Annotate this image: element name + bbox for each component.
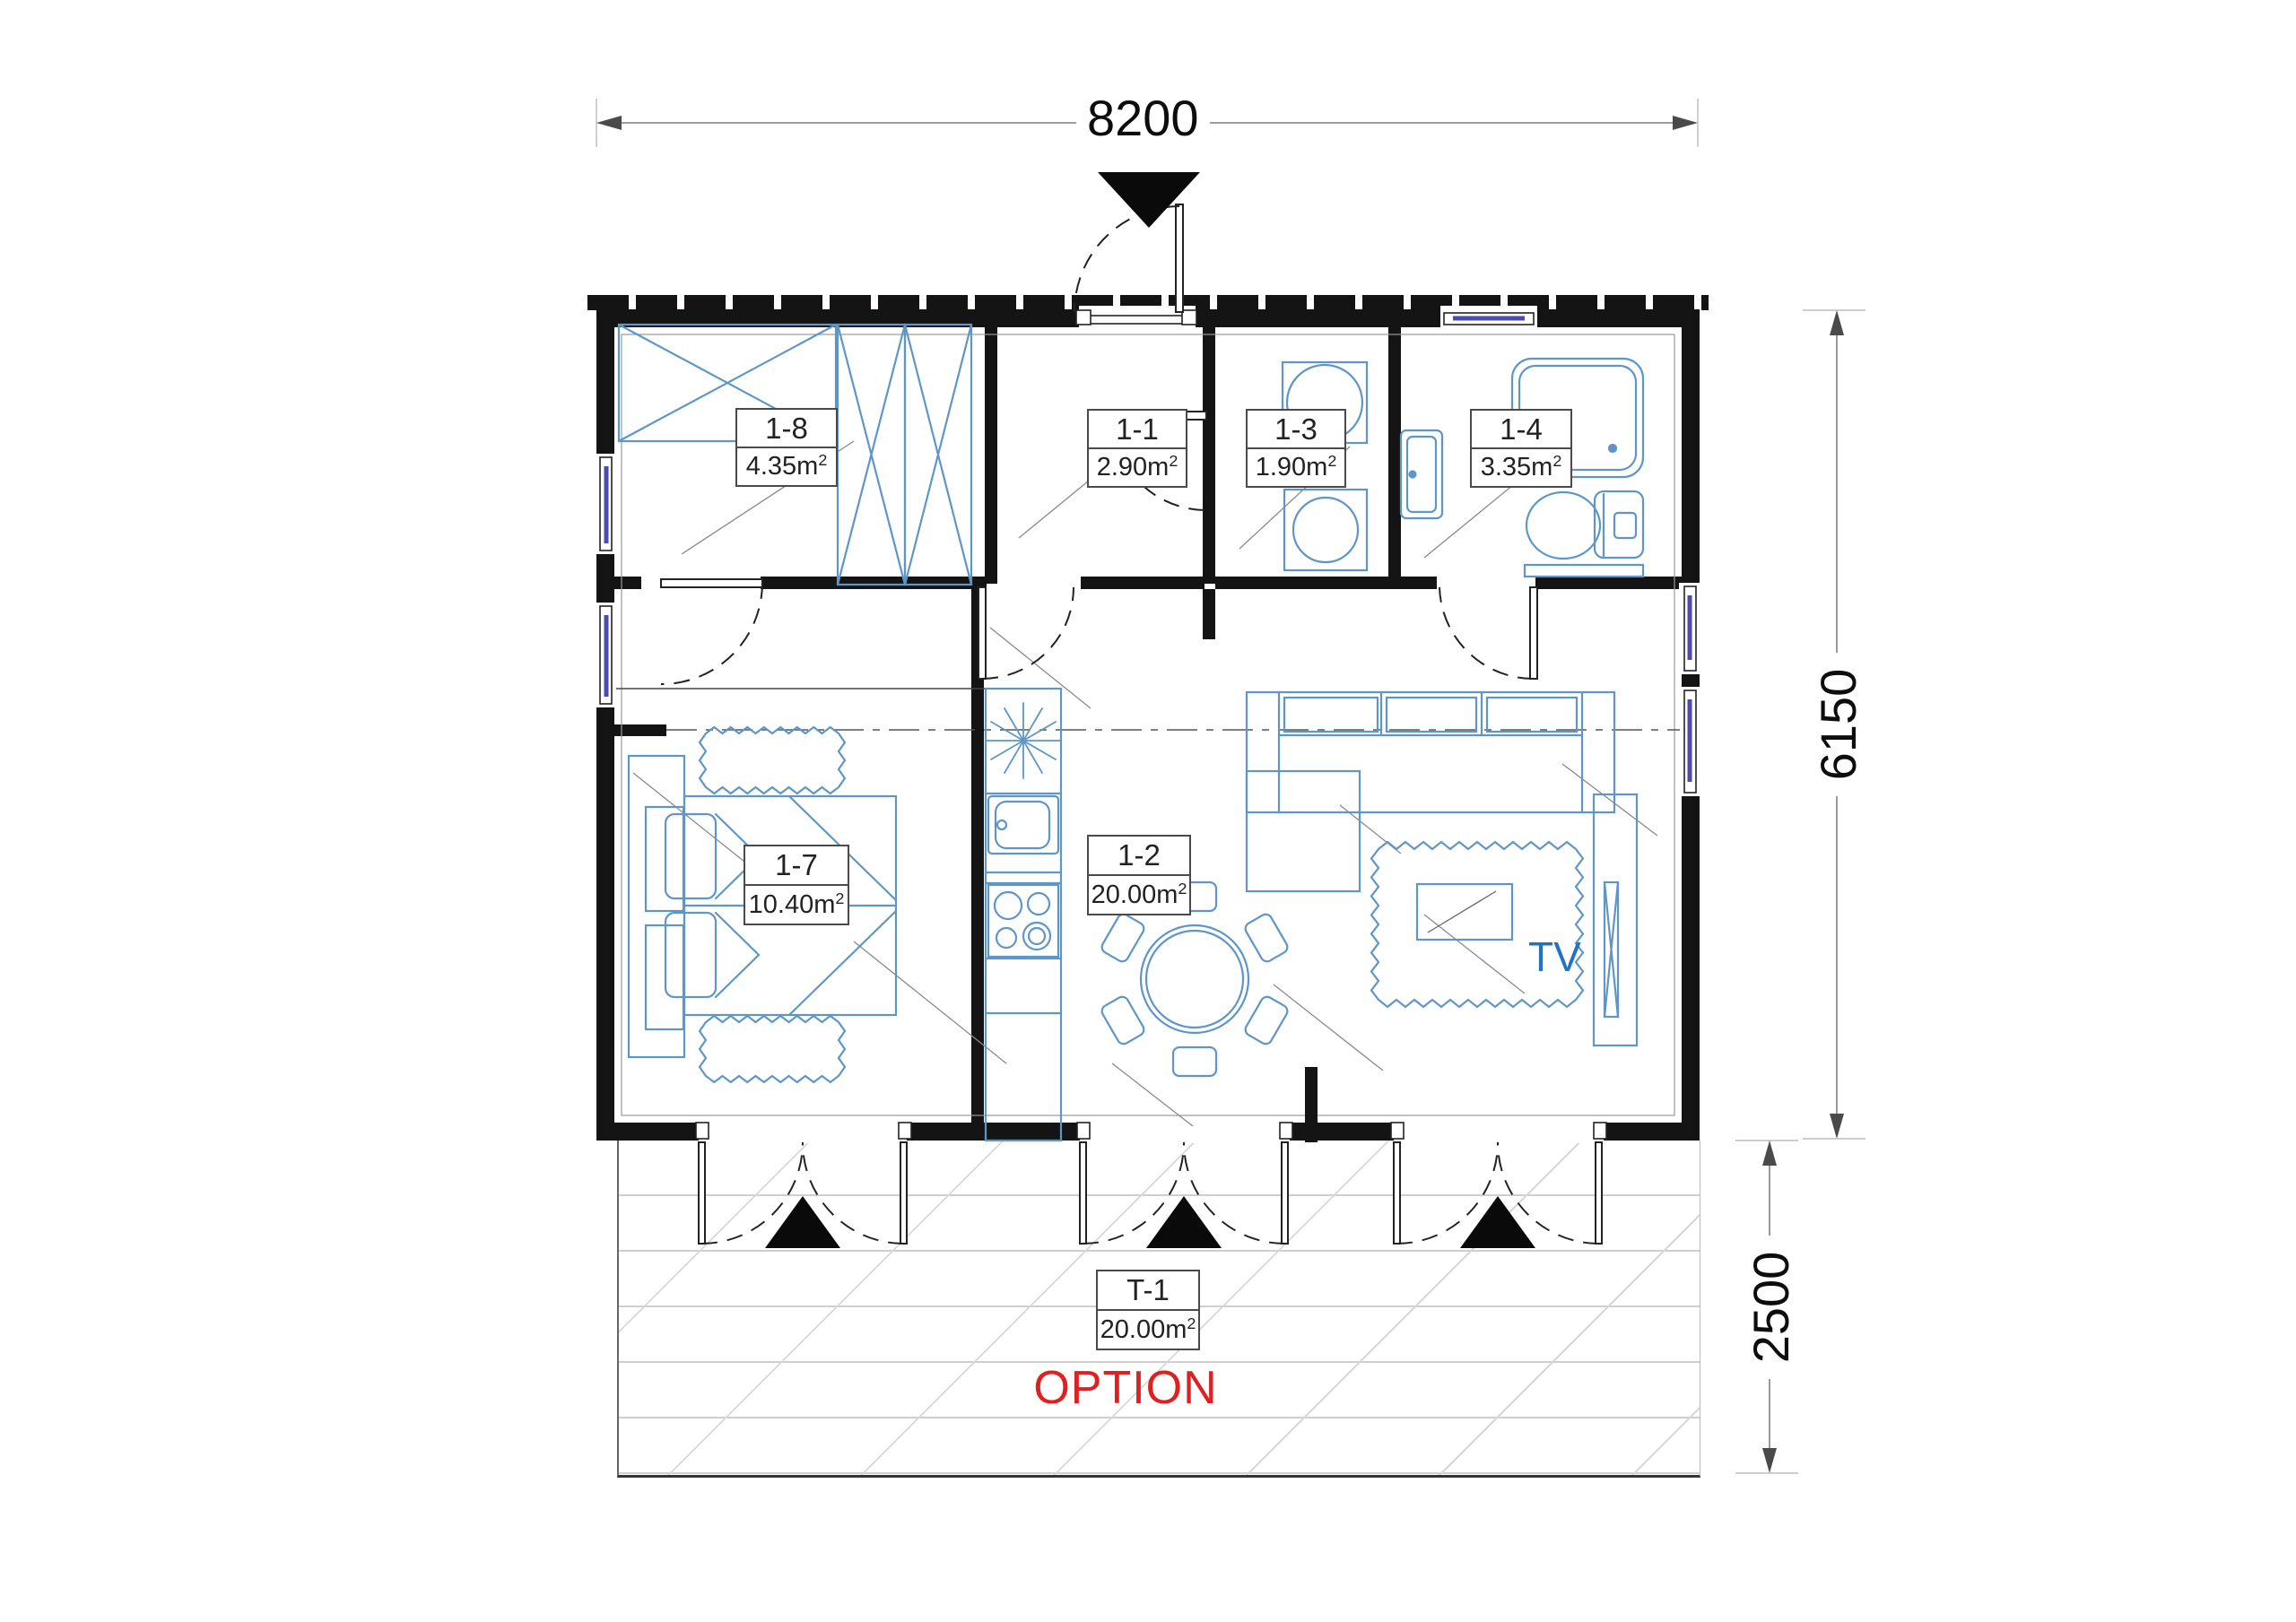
dimension-terrace-depth: 2500: [1744, 1236, 1798, 1379]
hob: [988, 885, 1058, 957]
ceiling-light-icon: [986, 703, 1061, 778]
room-area: 10.40m2: [745, 886, 848, 924]
room-label-closet: 1-8 4.35m2: [735, 408, 838, 487]
window-glazing: [606, 318, 1690, 782]
bedroom-rug-top: [700, 727, 845, 794]
washbasin: [1401, 430, 1442, 518]
room-area: 4.35m2: [737, 448, 836, 485]
living-rug: [1371, 842, 1583, 1007]
room-code: T-1: [1098, 1271, 1198, 1311]
toilet: [1526, 491, 1643, 559]
option-annotation: OPTION: [1022, 1361, 1229, 1415]
room-code: 1-1: [1089, 411, 1186, 449]
kitchen-sink: [988, 796, 1058, 854]
entrance-threshold: [1082, 316, 1193, 324]
room-area: 20.00m2: [1098, 1311, 1198, 1349]
hall-door-leaf: [978, 587, 986, 679]
room-label-bathroom: 1-4 3.35m2: [1470, 409, 1572, 488]
room-label-bedroom: 1-7 10.40m2: [744, 845, 849, 925]
sofa: [1247, 692, 1614, 891]
terrace-arrow-icon-1: [765, 1196, 840, 1248]
coffee-table-diagonal: [1428, 891, 1496, 932]
room-label-terrace: T-1 20.00m2: [1096, 1270, 1200, 1350]
dimension-lines: [596, 99, 1865, 1473]
room-label-hall: 1-1 2.90m2: [1087, 409, 1187, 488]
guide-lines: [633, 441, 1657, 1126]
bath-door-leaf: [1530, 587, 1537, 679]
room-area: 20.00m2: [1089, 876, 1189, 914]
direction-markers: [765, 172, 1535, 1248]
terrace-arrow-icon-2: [1146, 1196, 1222, 1248]
terrace-arrow-icon-3: [1460, 1196, 1535, 1248]
wall-stubs: [1203, 589, 1318, 1142]
room-area: 1.90m2: [1248, 449, 1344, 486]
tv-cabinet: [1594, 794, 1637, 1045]
entry-arrow-icon: [1098, 172, 1200, 228]
door-swing-arcs: [661, 206, 1599, 1244]
room-label-living: 1-2 20.00m2: [1087, 835, 1191, 915]
coffee-table: [1417, 884, 1512, 940]
dimension-height: 6150: [1812, 653, 1865, 796]
dryer: [1284, 490, 1367, 570]
dimension-width: 8200: [1076, 91, 1210, 145]
door-leaves: [661, 204, 1602, 1244]
tv-annotation: TV: [1528, 932, 1581, 981]
room-code: 1-8: [737, 410, 836, 448]
entrance-door-leaf: [1176, 204, 1183, 312]
room-code: 1-7: [745, 846, 848, 886]
room-code: 1-2: [1089, 837, 1189, 876]
room-code: 1-4: [1472, 411, 1570, 449]
room-code: 1-3: [1248, 411, 1344, 449]
floor-plan-canvas: 8200 6150 2500 1-8 4.35m2 1-1 2.90m2 1-3…: [0, 0, 2296, 1622]
room-label-utility: 1-3 1.90m2: [1246, 409, 1346, 488]
room-area: 3.35m2: [1472, 449, 1570, 486]
room-area: 2.90m2: [1089, 449, 1186, 486]
bedroom-rug-bottom: [700, 1016, 845, 1082]
bath-radiator: [1525, 565, 1643, 577]
closet-door-leaf: [661, 579, 762, 587]
